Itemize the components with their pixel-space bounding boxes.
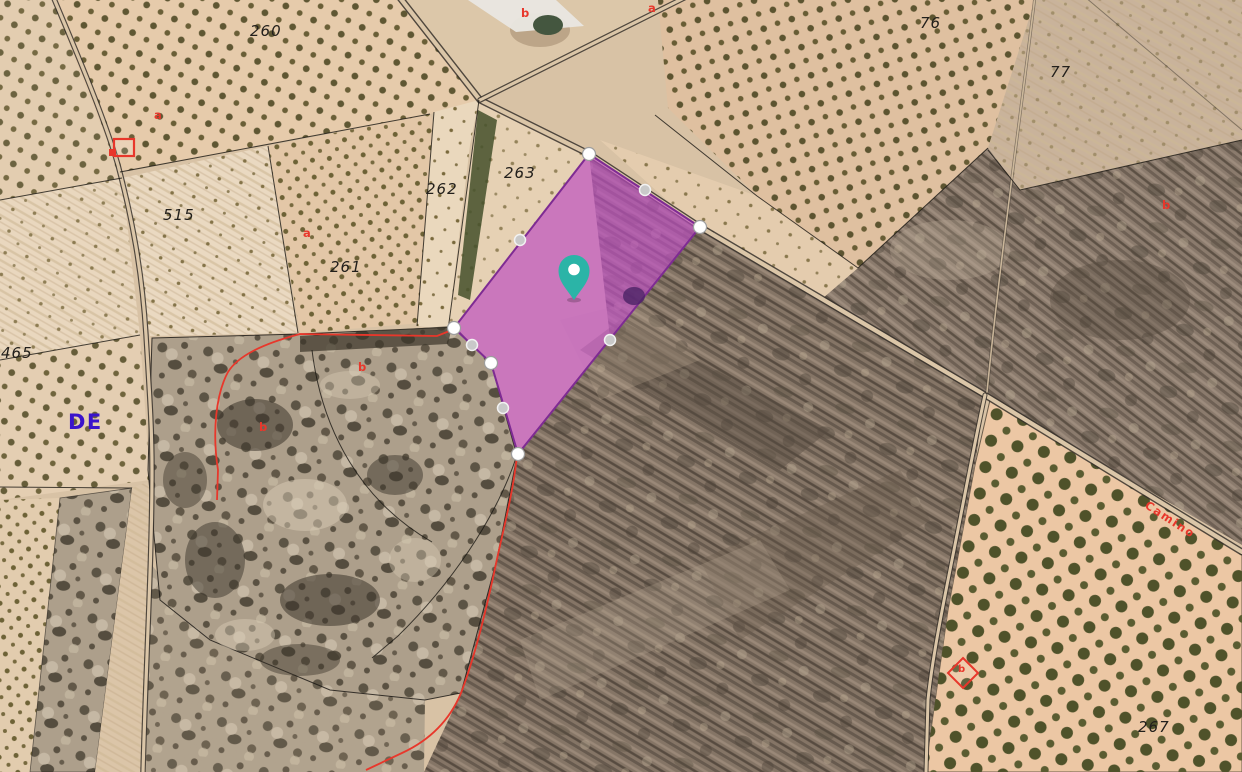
dark-spot-in-parcel bbox=[623, 287, 645, 305]
polygon-vertex-handle[interactable] bbox=[485, 357, 498, 370]
parcel-label-77: 77 bbox=[1050, 63, 1071, 81]
parcel-label-262: 262 bbox=[426, 180, 458, 198]
building-symbol-square bbox=[114, 139, 134, 156]
polygon-midpoint-handle[interactable] bbox=[498, 403, 509, 414]
parcel-label-263: 263 bbox=[504, 164, 536, 182]
polygon-vertex-handle[interactable] bbox=[448, 322, 461, 335]
red-marker-b: b bbox=[358, 360, 366, 374]
red-marker-b: b bbox=[521, 6, 529, 20]
polygon-midpoint-handle[interactable] bbox=[515, 235, 526, 246]
route-name-label: DE bbox=[68, 410, 103, 434]
satellite-map bbox=[0, 0, 1242, 772]
red-marker-a: a bbox=[303, 226, 311, 240]
red-marker-b: b bbox=[259, 420, 267, 434]
map-viewport[interactable]: 260 515 262 263 261 465 76 77 267 b a a … bbox=[0, 0, 1242, 772]
parcel-label-267: 267 bbox=[1138, 718, 1170, 736]
fields-layer bbox=[0, 0, 1242, 772]
red-marker-b: b bbox=[1162, 198, 1170, 212]
parcel-label-76: 76 bbox=[920, 14, 941, 32]
red-marker-a: a bbox=[154, 108, 162, 122]
parcel-label-261: 261 bbox=[330, 258, 362, 276]
red-marker-a: a bbox=[648, 1, 656, 15]
polygon-vertex-handle[interactable] bbox=[512, 448, 525, 461]
parcel-label-515: 515 bbox=[163, 206, 195, 224]
polygon-midpoint-handle[interactable] bbox=[640, 185, 651, 196]
polygon-vertex-handle[interactable] bbox=[694, 221, 707, 234]
polygon-midpoint-handle[interactable] bbox=[467, 340, 478, 351]
polygon-midpoint-handle[interactable] bbox=[605, 335, 616, 346]
red-marker-b-diamond: b bbox=[958, 664, 965, 675]
polygon-vertex-handle[interactable] bbox=[583, 148, 596, 161]
parcel-label-260: 260 bbox=[250, 22, 282, 40]
parcel-label-465: 465 bbox=[1, 344, 33, 362]
